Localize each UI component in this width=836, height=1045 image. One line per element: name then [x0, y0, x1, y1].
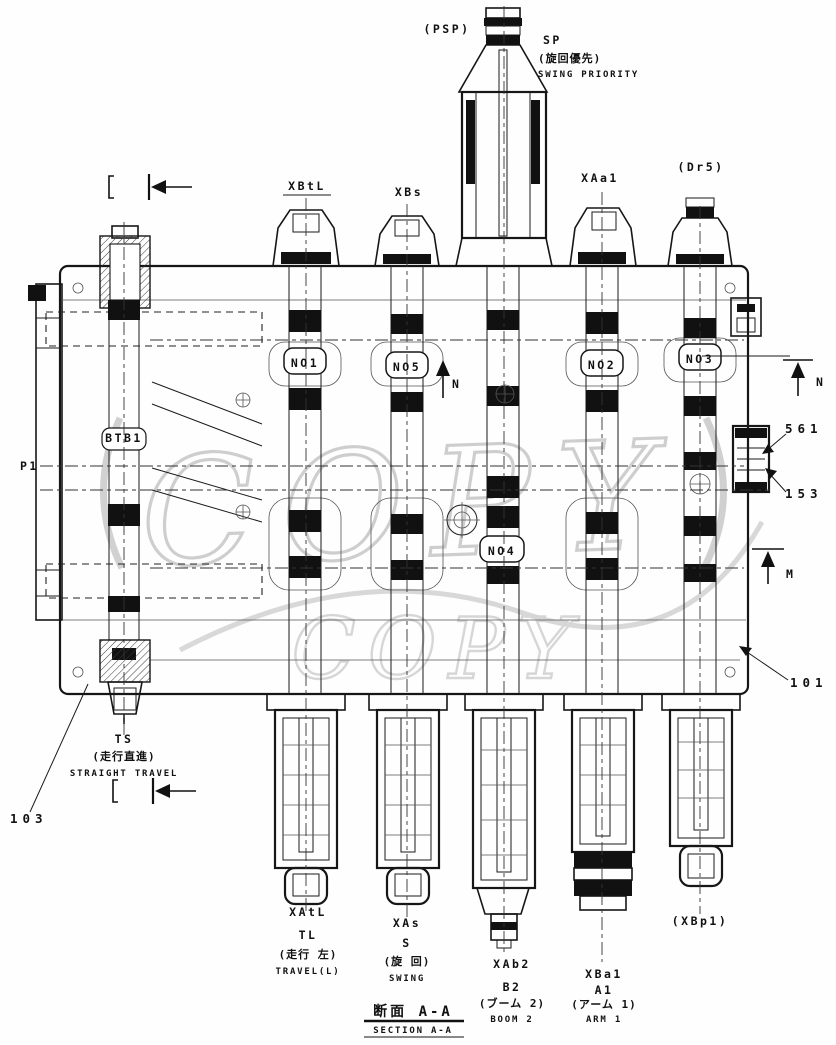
spool-number-no4: NO4 [488, 544, 516, 558]
label-b2-jp: (ブーム 2) [479, 996, 545, 1010]
swing-priority-valve [444, 8, 710, 694]
section-arrow-m-right [752, 549, 784, 584]
port-label-dr5: (Dr5) [677, 160, 724, 174]
item-number-103: 103 [10, 811, 48, 826]
spool-number-no3: NO3 [686, 352, 714, 366]
label-straight-travel: STRAIGHT TRAVEL [70, 769, 178, 779]
port-label-xaa1: XAa1 [581, 171, 619, 185]
port-label-tl: TL [299, 928, 318, 942]
label-s-jp: (旋 回) [384, 954, 431, 968]
port-label-s: S [402, 936, 411, 950]
label-tl-jp: (走行 左) [279, 947, 338, 961]
port-label-xbp1: (XBp1) [672, 914, 729, 928]
right-port-561-153 [733, 426, 769, 492]
spool-number-no5: NO5 [393, 360, 421, 374]
section-arrow-top-left [109, 174, 192, 200]
section-title-en: SECTION A-A [373, 1026, 452, 1036]
section-arrow-n-right [783, 360, 813, 396]
spring-can-2 [369, 694, 447, 904]
section-arrow-n-center [436, 360, 450, 398]
item-number-561: 561 [785, 421, 823, 436]
port-label-xbtl: XBtL [288, 179, 326, 193]
port-label-xba1: XBa1 [585, 967, 623, 981]
label-sp-jp: (旋回優先) [538, 51, 601, 65]
label-boom2: BOOM 2 [490, 1015, 533, 1025]
label-swing: SWING [389, 974, 425, 984]
spring-can-4 [564, 694, 642, 910]
drawing-sheet: COPY COPY [0, 0, 836, 1045]
spool-number-no1: NO1 [291, 356, 319, 370]
label-psp: (PSP) [423, 22, 470, 36]
section-letter-n-right: N [816, 375, 825, 389]
section-title-jp: 断面 A-A [373, 1003, 453, 1020]
port-label-xas: XAs [393, 916, 421, 930]
label-sp: SP [543, 33, 562, 47]
label-travel-l: TRAVEL(L) [276, 967, 341, 977]
section-letter-m: M [786, 567, 795, 581]
left-port-boss [28, 285, 46, 301]
port-label-xatl: XAtL [289, 905, 327, 919]
watermark-text-small: COPY [291, 600, 584, 698]
label-ts-jp: (走行直進) [92, 749, 155, 763]
copy-watermark: COPY COPY [103, 409, 762, 698]
spool-stamp: BTB1 [105, 431, 143, 445]
label-swing-priority: SWING PRIORITY [538, 70, 639, 80]
item-number-101: 101 [790, 675, 828, 690]
port-label-b2: B2 [503, 980, 522, 994]
section-title: 断面 A-A SECTION A-A [364, 1003, 464, 1037]
spring-can-5 [662, 694, 740, 886]
port-label-ts: TS [115, 732, 134, 746]
label-a1-jp: (アーム 1) [571, 998, 637, 1011]
port-label-p1: P1 [20, 459, 39, 473]
port-label-xbs: XBs [395, 185, 423, 199]
port-label-xab2: XAb2 [493, 957, 531, 971]
section-letter-n-center: N [452, 377, 461, 391]
label-arm1: ARM 1 [586, 1015, 622, 1025]
spool-number-no2: NO2 [588, 358, 616, 372]
port-label-a1: A1 [595, 983, 614, 997]
valve-section-drawing: COPY COPY [0, 0, 836, 1045]
item-number-153: 153 [785, 486, 823, 501]
section-arrow-bottom-left [113, 778, 196, 804]
